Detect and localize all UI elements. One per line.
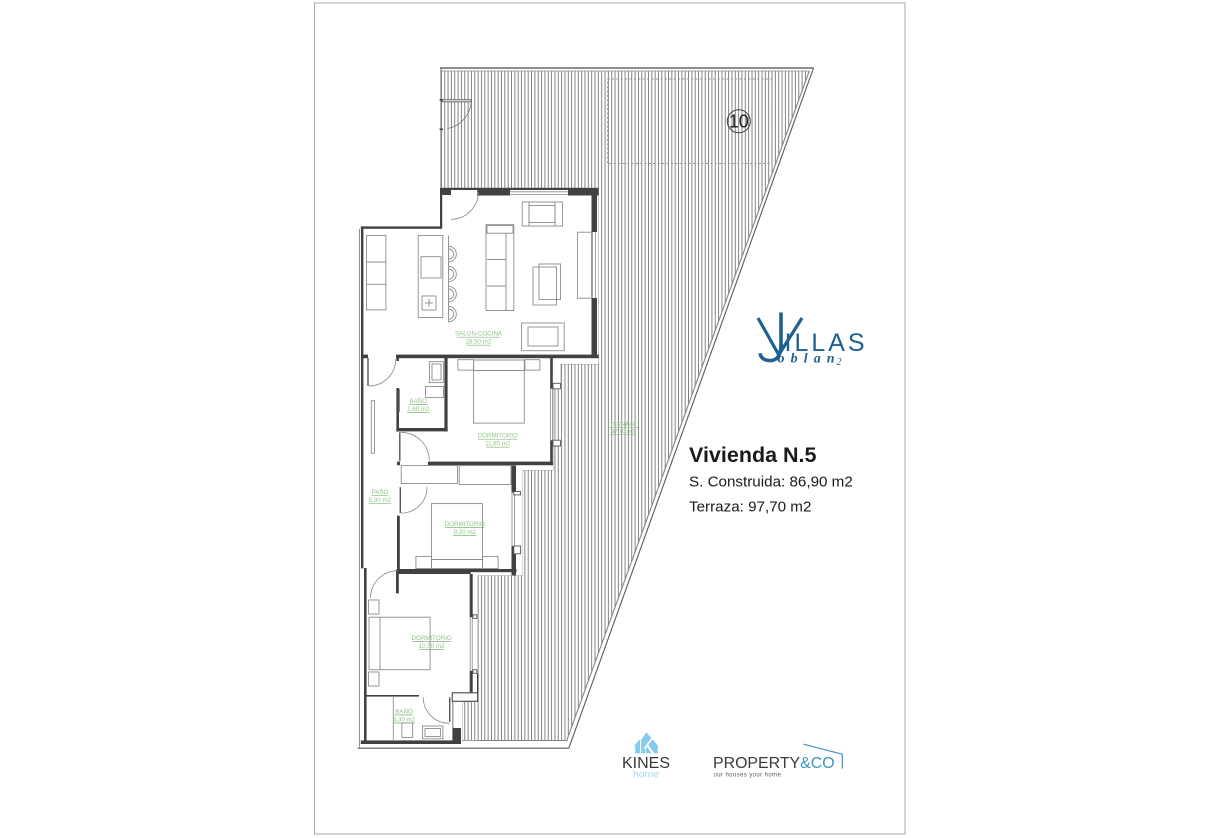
svg-text:2: 2 <box>837 357 842 368</box>
svg-text:BAÑO: BAÑO <box>395 709 413 716</box>
svg-text:BAÑO: BAÑO <box>410 398 428 405</box>
svg-text:Terraza: 97,70 m2: Terraza: 97,70 m2 <box>689 499 811 516</box>
svg-text:DORMITORIO: DORMITORIO <box>412 635 452 642</box>
svg-text:4,30 m2: 4,30 m2 <box>393 717 416 724</box>
svg-text:TERRAZA: TERRAZA <box>610 422 636 428</box>
svg-text:S. Construida: 86,90 m2: S. Construida: 86,90 m2 <box>689 474 853 491</box>
svg-text:2,60 m2: 2,60 m2 <box>407 406 430 413</box>
svg-text:28,50 m2: 28,50 m2 <box>466 339 492 346</box>
svg-text:5,30 m2: 5,30 m2 <box>369 497 392 504</box>
svg-text:our houses your home: our houses your home <box>714 772 782 778</box>
svg-text:97,70 m2: 97,70 m2 <box>611 429 634 435</box>
svg-text:11,65 m2: 11,65 m2 <box>485 441 511 448</box>
svg-text:PROPERTY&CO: PROPERTY&CO <box>713 755 835 772</box>
svg-text:Vivienda N.5: Vivienda N.5 <box>689 443 817 467</box>
svg-text:10: 10 <box>729 112 749 132</box>
svg-text:SALON-COCINA: SALON-COCINA <box>455 331 503 338</box>
svg-text:PASO: PASO <box>372 489 389 496</box>
svg-text:10,50 m2: 10,50 m2 <box>419 643 445 650</box>
svg-text:home: home <box>633 769 659 781</box>
svg-text:DORMITORIO: DORMITORIO <box>478 433 518 440</box>
svg-text:9,20 m2: 9,20 m2 <box>454 529 477 536</box>
svg-text:oblan: oblan <box>778 352 841 367</box>
svg-text:DORMITORIO: DORMITORIO <box>445 521 485 528</box>
